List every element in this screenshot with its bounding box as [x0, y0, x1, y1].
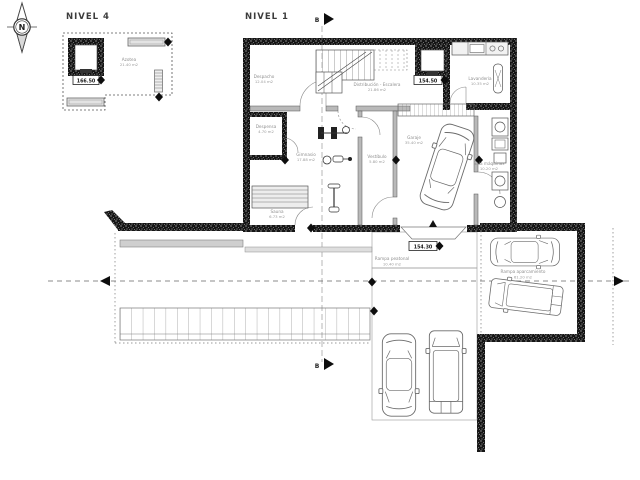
centerline-arrow-left [100, 276, 110, 286]
car-garage [415, 121, 480, 214]
paver-grid [120, 308, 370, 340]
room-area-gimnasio: 17.88 m2 [297, 157, 316, 162]
garage-beam-grille [398, 104, 474, 116]
ramp-edge-upper [120, 240, 243, 247]
ramp-edge-lower [245, 247, 372, 252]
centerline-arrow-right [614, 276, 624, 286]
room-area-sauna: 6.73 m2 [269, 214, 285, 219]
garage-door-arrow [429, 220, 437, 227]
sink [470, 45, 484, 53]
section-arrow-bottom [324, 358, 334, 370]
room-label-rampa-aparcamiento: Rampa aparcamiento [501, 269, 546, 274]
section-label-top: B [315, 17, 320, 24]
room-area-rampa-aparcamiento: 61.20 m2 [514, 275, 533, 280]
axis-diamond-ramp [368, 278, 376, 287]
ironing-board [494, 64, 503, 93]
compass-letter: N [19, 23, 26, 32]
room-area-distribucion: 21.86 m2 [368, 87, 387, 92]
floor-plan-sheet: N NIVEL 4 166.50 Azotea 21.40 m2 B B [0, 0, 640, 480]
nivel4-stair-shaft [75, 45, 97, 70]
nivel4-title: NIVEL 4 [66, 12, 110, 22]
garage-door [401, 227, 466, 239]
nivel4-skylight-top [128, 38, 165, 46]
elevator-shaft [421, 50, 444, 71]
sauna-bench [252, 186, 308, 208]
nivel4-shaft-door [80, 69, 92, 73]
parking-bottom: Rampa peatonal 10.40 m2 [368, 232, 477, 420]
section-arrow-top [324, 13, 334, 25]
nivel4-skylight-bottom [67, 98, 104, 106]
nivel4-ladder [155, 70, 163, 92]
room-area-azotea: 21.40 m2 [120, 62, 139, 67]
section-label-bottom: B [315, 363, 320, 370]
parking-right: Rampa aparcamiento 61.20 m2 [488, 235, 564, 319]
axis-diamond-parking [370, 307, 378, 316]
gym-equipment [318, 127, 352, 213]
nivel1-level-marker-lower: 154.30 [409, 242, 444, 251]
room-area-rampa-peatonal: 10.40 m2 [383, 262, 402, 267]
room-area-garaje: 35.40 m2 [405, 140, 424, 145]
nivel4-plan: NIVEL 4 166.50 Azotea 21.40 m2 [63, 12, 172, 110]
room-area-despensa: 4.70 m2 [258, 129, 274, 134]
level-value-lower: 154.30 [414, 244, 433, 250]
room-area-despacho: 12.04 m2 [255, 79, 274, 84]
elevator-door [427, 71, 438, 75]
car-parking-right-1 [491, 235, 560, 269]
nivel4-level-marker: 166.50 [73, 76, 105, 85]
room-label-rampa-peatonal: Rampa peatonal [375, 256, 409, 261]
nivel1-title: NIVEL 1 [245, 12, 289, 22]
car-parking-bottom-2 [426, 331, 466, 413]
north-compass-icon: N [7, 3, 37, 52]
room-area-vestibulo: 5.80 m2 [369, 159, 385, 164]
nivel4-level-value: 166.50 [77, 78, 96, 84]
car-parking-right-2 [488, 275, 564, 319]
room-area-lavanderia: 10.35 m2 [471, 81, 490, 86]
room-area-sala-maquinas: 10.20 m2 [480, 166, 499, 171]
level-value-upper: 154.50 [419, 78, 438, 84]
nivel1-level-marker-upper: 154.50 [414, 76, 449, 85]
floor-plan-drawing: N NIVEL 4 166.50 Azotea 21.40 m2 B B [0, 0, 640, 480]
nivel4-marker-diamond-right [155, 93, 163, 102]
car-parking-bottom-1 [379, 334, 419, 416]
